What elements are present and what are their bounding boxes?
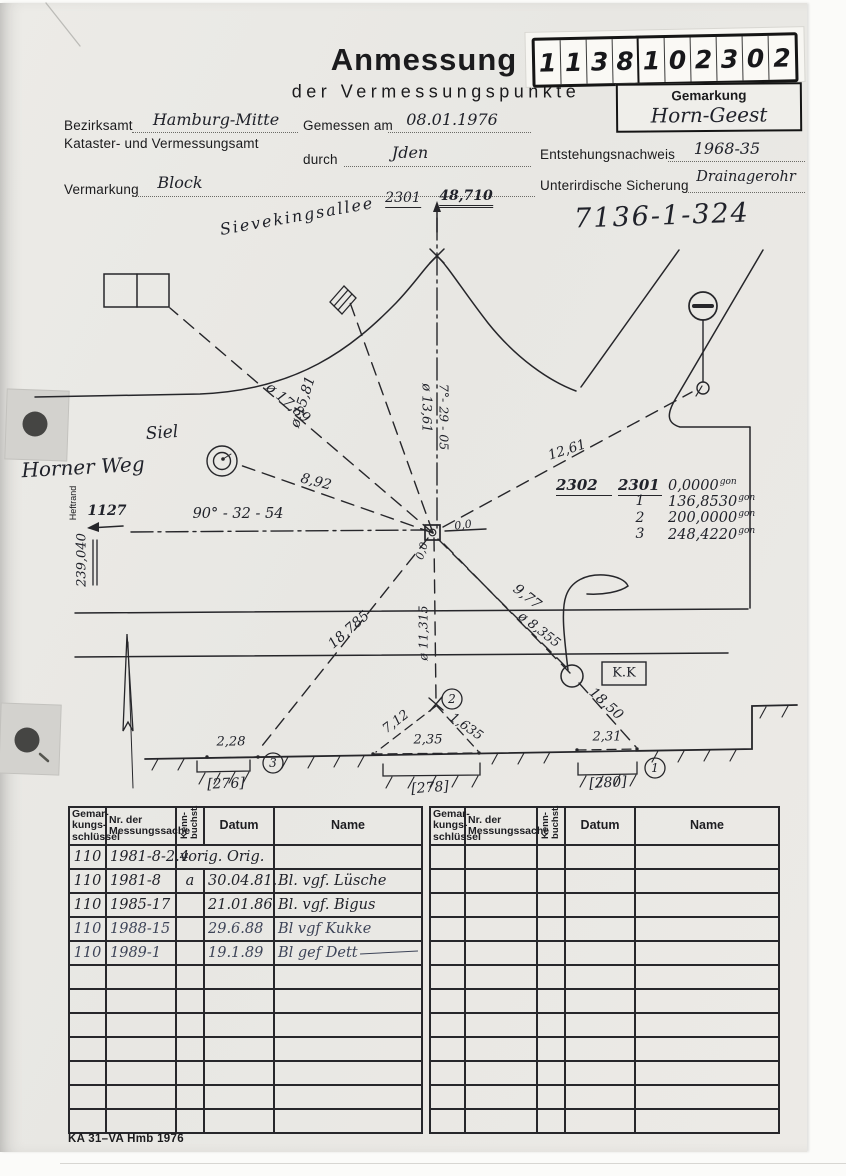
zero-right-label: 0,0 <box>453 517 472 532</box>
gemessen-am-label: Gemessen am <box>303 118 393 133</box>
cell-note: vorig. Orig. <box>176 845 274 869</box>
table-empty-cell <box>69 1085 106 1109</box>
cell-name: Bl. vgf. Bigus <box>274 893 422 917</box>
table-empty-row <box>69 1085 422 1109</box>
table-empty-row <box>430 917 779 941</box>
bracket-280-label: [280] <box>589 774 627 792</box>
table-empty-cell <box>176 1037 204 1061</box>
bearing-top-label: 7°- 29 - 05 <box>437 384 452 450</box>
table-empty-cell <box>465 1109 537 1133</box>
record-row: 110 1981-8-2.4 vorig. Orig. <box>69 845 422 869</box>
angle-value: 136,8530gon <box>668 493 766 510</box>
table-empty-cell <box>465 893 537 917</box>
table-empty-cell <box>204 1061 274 1085</box>
table-empty-cell <box>69 965 106 989</box>
table-empty-cell <box>274 1061 422 1085</box>
table-empty-row <box>430 941 779 965</box>
stamp-digit: 1 <box>639 38 666 83</box>
record-table-left: Gemar- kungs- schlüssel Nr. der Messungs… <box>68 806 423 1134</box>
table-empty-cell <box>537 869 565 893</box>
table-empty-cell <box>537 1061 565 1085</box>
cell-datum: 19.1.89 <box>204 941 274 965</box>
heftrand-label: Heftrand <box>68 486 78 521</box>
siel-label: Siel <box>145 422 179 444</box>
scan-edge-line <box>60 1163 846 1164</box>
table-empty-cell <box>635 845 779 869</box>
header-kennbuchst: Kenn- buchst. <box>176 807 204 845</box>
table-empty-row <box>430 869 779 893</box>
table-empty-cell <box>565 1061 635 1085</box>
table-empty-cell <box>635 893 779 917</box>
cell-kenn: a <box>176 869 204 893</box>
table-empty-cell <box>635 1085 779 1109</box>
table-empty-cell <box>635 965 779 989</box>
coord-239040-label: 239,040 <box>75 533 90 587</box>
table-empty-cell <box>106 1085 176 1109</box>
span-231-label: 2,31 <box>593 730 622 745</box>
stamp-digit: 3 <box>717 36 744 81</box>
table-empty-cell <box>635 1013 779 1037</box>
table-empty-cell <box>565 1037 635 1061</box>
angle-target-3: 3 <box>618 526 662 542</box>
table-empty-cell <box>537 941 565 965</box>
distance-label-1361: ø 13,61 <box>419 383 434 432</box>
point-3-number: 3 <box>269 756 277 770</box>
cell-gem: 110 <box>69 893 106 917</box>
table-empty-cell <box>565 1013 635 1037</box>
cell-name <box>274 845 422 869</box>
angle-readings-table: 2302 2301 0,0000gon 1 136,8530gon 2 200,… <box>556 476 766 542</box>
table-empty-cell <box>465 1085 537 1109</box>
table-empty-cell <box>635 1109 779 1133</box>
table-empty-row <box>430 1109 779 1133</box>
table-empty-cell <box>430 1109 465 1133</box>
table-empty-cell <box>565 917 635 941</box>
table-empty-row <box>430 1085 779 1109</box>
table-empty-cell <box>635 869 779 893</box>
span-235-label: 2,35 <box>414 733 443 748</box>
table-empty-row <box>430 893 779 917</box>
table-empty-cell <box>565 869 635 893</box>
table-empty-row <box>430 1061 779 1085</box>
kk-label: K.K <box>612 666 636 681</box>
table-empty-cell <box>204 1085 274 1109</box>
table-empty-cell <box>176 1109 204 1133</box>
table-empty-cell <box>635 1061 779 1085</box>
table-empty-cell <box>465 965 537 989</box>
table-empty-row <box>430 845 779 869</box>
table-empty-cell <box>565 1109 635 1133</box>
height-48710-label: 48,710 <box>439 188 493 208</box>
table-empty-cell <box>565 845 635 869</box>
table-empty-cell <box>465 1037 537 1061</box>
table-empty-cell <box>274 1037 422 1061</box>
table-empty-cell <box>106 1013 176 1037</box>
table-empty-cell <box>537 893 565 917</box>
table-empty-cell <box>537 845 565 869</box>
table-empty-cell <box>537 1109 565 1133</box>
table-empty-row <box>430 989 779 1013</box>
table-empty-cell <box>465 869 537 893</box>
table-empty-cell <box>465 1061 537 1085</box>
table-empty-cell <box>430 1085 465 1109</box>
form-id-footer: KA 31–VA Hmb 1976 <box>68 1133 184 1145</box>
table-empty-cell <box>537 989 565 1013</box>
gemarkung-box: Gemarkung Horn-Geest <box>616 82 802 133</box>
table-empty-cell <box>430 917 465 941</box>
table-empty-row <box>69 1109 422 1133</box>
header-datum: Datum <box>204 807 274 845</box>
page-title: Anmessung <box>331 42 517 78</box>
table-empty-cell <box>430 989 465 1013</box>
cell-kenn <box>176 893 204 917</box>
table-empty-cell <box>537 1037 565 1061</box>
stamp-digit: 0 <box>743 36 770 81</box>
stamp-digit-grid: 1 1 3 8 1 0 2 3 0 2 <box>532 32 799 88</box>
table-empty-cell <box>106 1037 176 1061</box>
table-empty-row <box>69 1061 422 1085</box>
table-empty-cell <box>465 917 537 941</box>
stamp-digit: 2 <box>691 37 718 82</box>
entstehungsnachweis-value: 1968-35 <box>672 139 782 158</box>
table-empty-cell <box>465 989 537 1013</box>
record-row: 110 1988-15 29.6.88 Bl vgf Kukke <box>69 917 422 941</box>
table-empty-cell <box>106 989 176 1013</box>
unterirdische-sicherung-label: Unterirdische Sicherung <box>540 178 689 193</box>
distance-label-11315: ø 11,315 <box>416 605 431 660</box>
cell-name: Bl gef Dett <box>274 941 422 965</box>
stamp-digit: 8 <box>613 39 640 84</box>
stamp-digit: 0 <box>665 37 692 82</box>
table-empty-cell <box>204 1109 274 1133</box>
header-name: Name <box>635 807 779 845</box>
record-row: 110 1981-8 a 30.04.81. Bl. vgf. Lüsche <box>69 869 422 893</box>
angle-target-1: 1 <box>618 493 662 509</box>
header-gemarkungsschluessel: Gemar- kungs- schlüssel <box>69 807 106 845</box>
table-empty-cell <box>176 989 204 1013</box>
bracket-276-label: [276] <box>207 775 245 792</box>
amt-line: Kataster- und Vermessungsamt <box>64 136 259 151</box>
table-empty-cell <box>176 1061 204 1085</box>
table-empty-cell <box>69 1037 106 1061</box>
table-empty-cell <box>465 1013 537 1037</box>
table-empty-cell <box>565 989 635 1013</box>
table-empty-cell <box>430 845 465 869</box>
table-empty-cell <box>635 989 779 1013</box>
cell-gem: 110 <box>69 941 106 965</box>
table-empty-cell <box>565 941 635 965</box>
header-gemarkungsschluessel: Gemar- kungs- schlüssel <box>430 807 465 845</box>
cell-nr: 1985-17 <box>106 893 176 917</box>
angle-value: 200,0000gon <box>668 509 766 526</box>
table-empty-row <box>430 1037 779 1061</box>
header-datum: Datum <box>565 807 635 845</box>
table-empty-cell <box>204 1037 274 1061</box>
ref-1127-label: 1127 <box>88 503 127 519</box>
span-228-label: 2,28 <box>217 735 246 750</box>
table-header-row: Gemar- kungs- schlüssel Nr. der Messungs… <box>69 807 422 845</box>
table-empty-cell <box>176 1085 204 1109</box>
cell-name: Bl. vgf. Lüsche <box>274 869 422 893</box>
header-kennbuchst: Kenn- buchst. <box>537 807 565 845</box>
table-empty-cell <box>204 989 274 1013</box>
table-empty-cell <box>69 1109 106 1133</box>
cell-nr: 1981-8 <box>106 869 176 893</box>
empty-rows <box>430 845 779 1133</box>
cell-name: Bl vgf Kukke <box>274 917 422 941</box>
record-table-right: Gemar- kungs- schlüssel Nr. der Messungs… <box>429 806 780 1134</box>
signature-flourish <box>360 950 418 954</box>
table-empty-row <box>69 989 422 1013</box>
number-stamp-sticker: 1 1 3 8 1 0 2 3 0 2 <box>525 27 804 87</box>
station-2302: 2302 <box>556 476 612 496</box>
stamp-digit: 1 <box>535 40 562 85</box>
table-header-row: Gemar- kungs- schlüssel Nr. der Messungs… <box>430 807 779 845</box>
empty-rows <box>69 965 422 1133</box>
angle-target-2: 2 <box>618 510 662 526</box>
point-id-handwritten: 7136-1-324 <box>574 197 751 234</box>
cell-datum: 29.6.88 <box>204 917 274 941</box>
bezirksamt-label: Bezirksamt <box>64 118 133 133</box>
cell-gem: 110 <box>69 917 106 941</box>
table-empty-row <box>430 1013 779 1037</box>
table-empty-row <box>69 965 422 989</box>
table-empty-cell <box>106 1109 176 1133</box>
table-empty-cell <box>635 1037 779 1061</box>
bearing-left-label: 90° - 32 - 54 <box>193 506 284 522</box>
cell-nr: 1988-15 <box>106 917 176 941</box>
table-empty-cell <box>176 1013 204 1037</box>
table-empty-row <box>69 1037 422 1061</box>
unterirdische-sicherung-value: Drainagerohr <box>690 169 802 185</box>
vermarkung-value: Block <box>140 173 220 192</box>
entstehungsnachweis-label: Entstehungsnachweis <box>540 147 675 162</box>
bracket-278-label: [278] <box>411 779 450 798</box>
table-empty-row <box>430 965 779 989</box>
table-empty-cell <box>274 989 422 1013</box>
record-row: 110 1989-1 19.1.89 Bl gef Dett <box>69 941 422 965</box>
table-empty-cell <box>430 869 465 893</box>
cell-gem: 110 <box>69 869 106 893</box>
stamp-digit: 1 <box>561 40 588 85</box>
header-name: Name <box>274 807 422 845</box>
table-empty-cell <box>69 1061 106 1085</box>
table-empty-row <box>69 1013 422 1037</box>
table-empty-cell <box>274 1109 422 1133</box>
table-empty-cell <box>274 1085 422 1109</box>
table-empty-cell <box>430 1037 465 1061</box>
table-empty-cell <box>565 965 635 989</box>
cell-datum: 30.04.81. <box>204 869 274 893</box>
gemessen-am-value: 08.01.1976 <box>392 110 512 129</box>
point-1-number: 1 <box>651 761 659 775</box>
table-empty-cell <box>430 965 465 989</box>
cell-kenn <box>176 941 204 965</box>
point-2-number: 2 <box>448 692 456 706</box>
table-empty-cell <box>274 965 422 989</box>
table-empty-cell <box>465 941 537 965</box>
durch-value: Jden <box>360 143 460 162</box>
cell-datum: 21.01.86 <box>204 893 274 917</box>
table-empty-cell <box>430 941 465 965</box>
table-empty-cell <box>69 989 106 1013</box>
table-empty-cell <box>106 965 176 989</box>
stamp-digit: 3 <box>587 39 614 84</box>
table-empty-cell <box>537 917 565 941</box>
stamp-digit: 2 <box>769 35 796 80</box>
cell-gem: 110 <box>69 845 106 869</box>
table-empty-cell <box>565 893 635 917</box>
table-empty-cell <box>430 1061 465 1085</box>
table-empty-cell <box>274 1013 422 1037</box>
table-empty-cell <box>204 965 274 989</box>
table-empty-cell <box>106 1061 176 1085</box>
table-empty-cell <box>204 1013 274 1037</box>
table-empty-cell <box>430 893 465 917</box>
table-empty-cell <box>537 1013 565 1037</box>
table-empty-cell <box>537 965 565 989</box>
angle-value: 248,4220gon <box>668 526 766 543</box>
table-empty-cell <box>69 1013 106 1037</box>
bezirksamt-value: Hamburg-Mitte <box>136 110 296 129</box>
cell-nr: 1989-1 <box>106 941 176 965</box>
table-empty-cell <box>465 845 537 869</box>
gemarkung-value: Horn-Geest <box>618 102 800 128</box>
table-empty-cell <box>176 965 204 989</box>
cell-kenn <box>176 917 204 941</box>
angle-value: 0,0000gon <box>668 477 766 494</box>
durch-label: durch <box>303 152 338 167</box>
record-row: 110 1985-17 21.01.86 Bl. vgf. Bigus <box>69 893 422 917</box>
cell-nr: 1981-8-2.4 <box>106 845 176 869</box>
point-2301-label: 2301 <box>385 190 421 208</box>
table-empty-cell <box>430 1013 465 1037</box>
gemarkung-label: Gemarkung <box>618 87 800 104</box>
table-empty-cell <box>537 1085 565 1109</box>
vermarkung-label: Vermarkung <box>64 182 139 197</box>
table-empty-cell <box>565 1085 635 1109</box>
table-empty-cell <box>635 941 779 965</box>
table-empty-cell <box>635 917 779 941</box>
